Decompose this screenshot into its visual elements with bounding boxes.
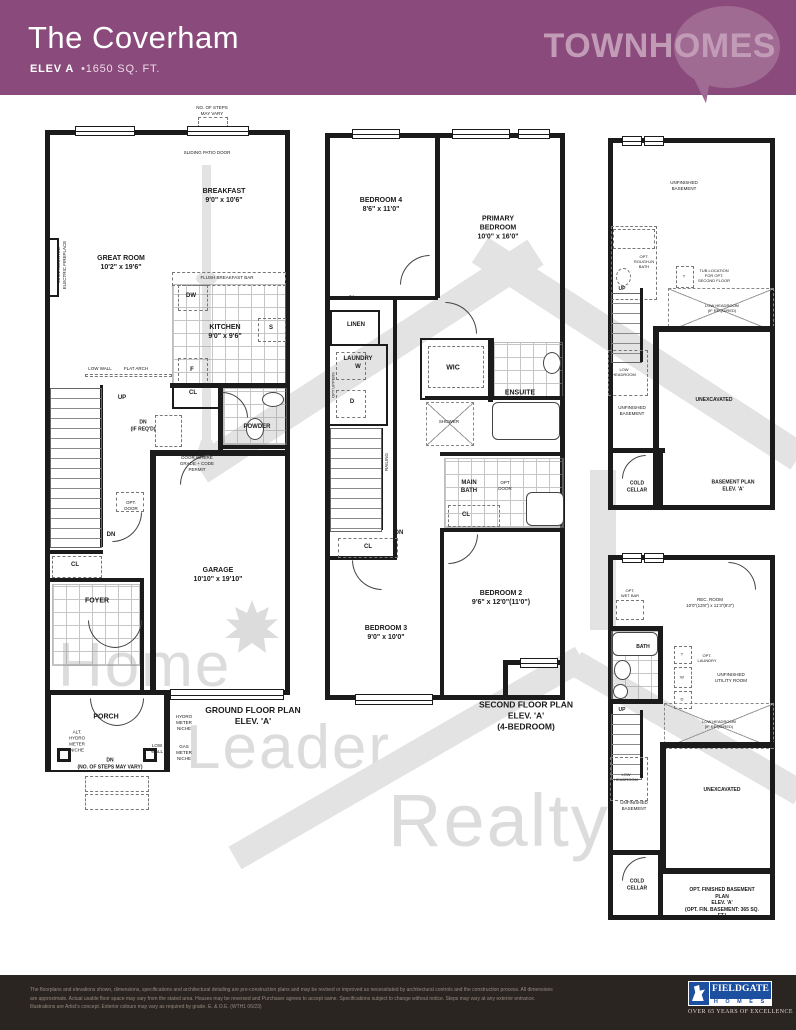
label-bedroom2: BEDROOM 2 9'6" x 12'0"(11'0") xyxy=(472,589,530,607)
label-dn2: DN xyxy=(395,530,404,538)
label-cl-kitchen: CL xyxy=(189,390,197,398)
label-unfinished-basement2: UNFINISHED BASEMENT xyxy=(620,800,648,812)
label-fridge: F xyxy=(190,367,194,375)
wall xyxy=(653,326,775,332)
wall xyxy=(45,578,140,582)
second-floor-caption: SECOND FLOOR PLAN ELEV. 'A' (4-BEDROOM) xyxy=(479,699,573,732)
fieldgate-logo-box: FIELDGATE H O M E S xyxy=(688,981,772,1006)
sqft-label: •1650 SQ. FT. xyxy=(81,63,160,75)
label-steps-note: NO. OF STEPS MAY VARY xyxy=(196,105,228,117)
wall xyxy=(164,695,170,772)
bathtub xyxy=(612,632,658,656)
fieldgate-homes: H O M E S xyxy=(710,999,771,1005)
flyer-page: The Coverham ELEV A •1650 SQ. FT. TOWNHO… xyxy=(0,0,796,1030)
window xyxy=(352,129,400,139)
label-great-room: GREAT ROOM 10'2" x 19'6" xyxy=(97,254,145,272)
wall xyxy=(150,456,156,695)
label-breakfast: BREAKFAST 9'0" x 10'6" xyxy=(203,187,246,205)
label-garage: GARAGE 10'10" x 19'10" xyxy=(194,566,243,584)
wall xyxy=(425,396,565,400)
label-dryer2: D xyxy=(681,696,684,701)
label-opt-bath: OPT. ROUGH-IN BATH xyxy=(634,254,654,270)
label-utility-room: UNFINISHED UTILITY ROOM xyxy=(715,672,747,684)
wall xyxy=(658,626,663,704)
label-main-bath: MAIN BATH xyxy=(461,480,477,496)
window xyxy=(75,126,135,136)
window xyxy=(355,694,433,705)
label-foyer: FOYER xyxy=(85,596,109,605)
label-flat-arch: FLAT ARCH xyxy=(124,366,148,372)
elevation-label: ELEV A xyxy=(30,63,74,75)
window xyxy=(644,136,664,146)
wall xyxy=(488,338,493,402)
basement-caption: BASEMENT PLAN ELEV. 'A' xyxy=(711,480,754,493)
low-wall-line xyxy=(85,374,172,377)
window xyxy=(452,129,510,139)
elevation-info: ELEV A •1650 SQ. FT. xyxy=(30,63,160,75)
stairs-up xyxy=(50,388,102,548)
window xyxy=(644,553,664,563)
label-tub-note: TUB LOCATION FOR OPT. SECOND FLOOR xyxy=(698,268,730,284)
wall xyxy=(393,300,397,560)
label-dn-if-reqd: DN (IF REQ'D) xyxy=(131,420,156,433)
stair-railing xyxy=(382,428,383,530)
label-dw: DW xyxy=(186,293,196,301)
bathtub xyxy=(492,402,560,440)
label-railing: RAILING xyxy=(384,453,390,471)
label-low-headroom: LOW HEADROOM xyxy=(612,367,636,377)
label-low-wall2: LOW WALL xyxy=(151,743,163,755)
wall xyxy=(660,868,775,874)
label-up: UP xyxy=(118,395,126,403)
wall xyxy=(150,450,290,456)
fieldgate-figure-icon xyxy=(692,985,705,1001)
window xyxy=(518,129,550,139)
fieldgate-name: FIELDGATE xyxy=(710,982,771,994)
label-dn-steps: DN (NO. OF STEPS MAY VARY) xyxy=(77,758,142,771)
watermark-word-realty: Realty xyxy=(388,778,610,863)
opt-basement-caption: OPT. FINISHED BASEMENT PLAN ELEV. 'A' (O… xyxy=(685,887,759,920)
label-unexcavated: UNEXCAVATED xyxy=(696,397,733,404)
dn-if-reqd-steps xyxy=(155,415,182,447)
label-flush-bar: FLUSH BREAKFAST BAR xyxy=(201,275,254,281)
label-bedroom4: BEDROOM 4 8'6" x 11'0" xyxy=(360,196,402,214)
fieldgate-logo-text: FIELDGATE H O M E S xyxy=(710,982,771,1005)
opt-wet-bar-box xyxy=(616,600,644,620)
porch-steps xyxy=(85,794,149,810)
label-laundry: LAUNDRY W xyxy=(343,356,372,372)
opt-bathtub xyxy=(613,229,655,249)
wall xyxy=(330,296,438,300)
footer-band: The floorplans and elevations shown, dim… xyxy=(0,975,796,1030)
label-dryer: D xyxy=(350,399,354,407)
label-gas-niche: GAS METER NICHE xyxy=(176,744,192,762)
door-swing xyxy=(116,698,144,726)
wall xyxy=(45,695,51,772)
speech-bubble-tail-icon xyxy=(690,79,710,103)
label-cl-foyer: CL xyxy=(71,562,79,570)
label-door-grade: DOOR WHERE GRADE + CODE PERMIT xyxy=(180,455,214,473)
label-opt-uppers: OPT UPPERS xyxy=(330,372,335,398)
header-band: The Coverham ELEV A •1650 SQ. FT. TOWNHO… xyxy=(0,0,796,95)
wall xyxy=(45,550,103,554)
garage-door xyxy=(170,689,284,700)
wall xyxy=(660,742,775,748)
wall xyxy=(440,452,565,456)
label-cold-cellar: COLD CELLAR xyxy=(627,481,647,494)
wall xyxy=(140,578,144,695)
wall xyxy=(608,626,663,631)
label-opt-wet-bar: OPT. WET BAR xyxy=(621,588,639,598)
label-laundry-tub: T xyxy=(681,651,683,656)
ground-floor-caption: GROUND FLOOR PLAN ELEV. 'A' xyxy=(205,705,300,727)
sliding-patio-door xyxy=(187,126,249,136)
label-linen: LINEN xyxy=(347,322,365,330)
wall xyxy=(608,699,663,704)
label-shower: SHOWER xyxy=(439,419,459,425)
label-opt-door: OPT. DOOR xyxy=(124,500,138,512)
wall xyxy=(608,850,665,855)
window xyxy=(622,136,642,146)
label-ensuite: ENSUITE xyxy=(505,388,535,397)
wall xyxy=(608,448,665,453)
wall xyxy=(440,528,444,700)
label-wic: WIC xyxy=(446,363,460,372)
wall xyxy=(658,850,663,920)
window xyxy=(520,658,558,668)
label-washer: W xyxy=(680,674,684,679)
label-hydro-niche: HYDRO METER NICHE xyxy=(176,714,192,732)
toilet xyxy=(614,660,631,680)
label-unexcavated2: UNEXCAVATED xyxy=(704,787,741,794)
toilet xyxy=(543,352,561,374)
label-low-headroom-req2: LOW HEADROOM (IF REQUIRED) xyxy=(702,719,736,729)
fieldgate-logo-icon xyxy=(689,982,710,1005)
porch-steps xyxy=(85,776,149,792)
label-porch: PORCH xyxy=(93,712,118,721)
label-rec-room: REC. ROOM 10'0"(13'8") x 11'3"(8'3") xyxy=(686,597,734,609)
fieldgate-tagline: OVER 65 YEARS OF EXCELLENCE xyxy=(688,1009,772,1015)
label-cl-mid: CL xyxy=(462,512,470,520)
townhomes-logo: TOWNHOMES xyxy=(544,27,776,66)
label-unfinished-basement-top: UNFINISHED BASEMENT xyxy=(670,180,698,192)
label-cl-low: CL xyxy=(364,544,372,552)
label-bath: BATH xyxy=(636,644,650,651)
wall xyxy=(658,448,663,510)
label-bedroom3: BEDROOM 3 9'0" x 10'0" xyxy=(365,624,407,642)
label-kitchen: KITCHEN 9'0" x 9'6" xyxy=(208,323,241,341)
sink xyxy=(613,684,628,699)
wall xyxy=(440,528,565,532)
page-title: The Coverham xyxy=(28,20,239,56)
window xyxy=(622,553,642,563)
label-sliding-door: SLIDING PATIO DOOR xyxy=(184,150,231,156)
wall xyxy=(503,660,508,700)
label-cold-cellar2: COLD CELLAR xyxy=(627,879,647,892)
bathtub xyxy=(526,492,564,526)
label-sink: S xyxy=(269,325,273,333)
label-alt-hydro: ALT. HYDRO METER NICHE xyxy=(69,729,85,752)
label-primary-bedroom: PRIMARY BEDROOM 10'0" x 16'0" xyxy=(477,214,518,241)
stairs-down xyxy=(330,428,382,532)
label-opt-laundry: OPT. LAUNDRY xyxy=(697,653,716,663)
opt-toilet xyxy=(616,268,631,286)
label-up2: UP xyxy=(619,707,626,714)
label-cl-top: CL xyxy=(348,296,356,304)
legal-disclaimer: The floorplans and elevations shown, dim… xyxy=(30,986,555,1012)
bedroom2-closet xyxy=(448,505,500,527)
sink xyxy=(262,392,284,407)
wall xyxy=(222,445,290,449)
label-low-headroom-req: LOW HEADROOM (IF REQUIRED) xyxy=(705,303,739,313)
label-dn: DN xyxy=(107,532,116,540)
wall xyxy=(435,138,440,298)
label-powder: POWDER xyxy=(244,424,271,432)
label-up: UP xyxy=(619,286,626,293)
fieldgate-logo: FIELDGATE H O M E S OVER 65 YEARS OF EXC… xyxy=(688,981,772,1015)
label-opt-door: OPT DOOR xyxy=(498,480,512,492)
label-unfinished-basement: UNFINISHED BASEMENT xyxy=(618,405,646,417)
label-low-wall: LOW WALL xyxy=(88,366,112,372)
label-tub-t: T xyxy=(683,273,685,278)
label-low-headroom2: LOW HEADROOM xyxy=(614,772,638,782)
label-fireplace: WALL MOUNTED ELECTRIC FIREPLACE xyxy=(56,241,68,290)
